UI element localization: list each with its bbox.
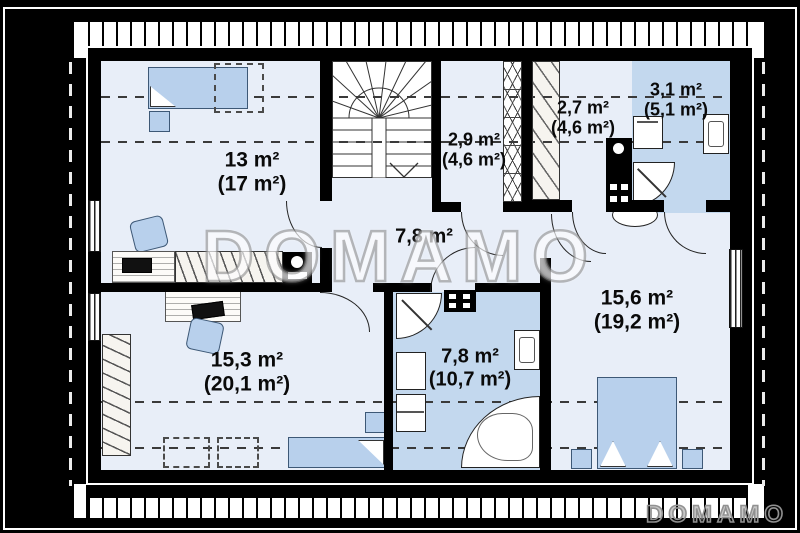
room-area: 15,3 m² [204,348,290,372]
nightstand-symbol-4 [682,449,703,469]
cabinet-line [397,411,424,413]
washer-lid-line [637,121,658,123]
wall [503,202,532,212]
sink-basin-2 [519,337,535,363]
sink-symbol-2 [514,330,540,370]
room-total-area: (4,6 m²) [551,118,615,138]
room-label-bathroom-main: 7,8 m² (10,7 m²) [429,345,511,390]
bed-dashed-outline [214,63,264,113]
wardrobe-symbol-2 [102,334,131,456]
chimney-vent-3 [610,196,617,202]
wall [432,61,441,212]
window-symbol-3 [729,249,743,328]
roof-hatch-bottom-left-cell [72,482,88,520]
room-total-area: (4,6 m²) [442,150,506,170]
wall [522,61,532,202]
planned-furniture-outline-2 [217,437,259,468]
watermark-text: DOMAMO [202,216,598,298]
chimney-vent-1 [610,184,617,190]
room-label-bathroom-small: 3,1 m² (5,1 m²) [644,80,708,121]
room-area: 2,9 m² [442,130,506,150]
shower-diagonal-2 [402,299,433,330]
window-symbol-2 [88,293,101,341]
chimney-dial [613,143,624,154]
room-area: 7,8 m² [429,345,511,368]
sink-basin [708,121,724,147]
room-total-area: (20,1 m²) [204,372,290,396]
room-total-area: (19,2 m²) [594,310,680,334]
cabinet-symbol-1 [396,352,426,390]
heater-dot-4 [463,303,470,308]
room-area: 13 m² [218,148,287,172]
wall [706,200,730,212]
cabinet-symbol-2 [396,394,426,432]
desk-keyboard-symbol [122,258,152,273]
room-total-area: (5,1 m²) [644,100,708,120]
room-label-bedroom-right: 15,6 m² (19,2 m²) [594,286,680,333]
chimney-vent-4 [621,196,628,202]
roof-edge-dashed-right [762,62,765,486]
room-area: 3,1 m² [644,80,708,100]
floor-plan: 13 m² (17 m²) 2,9 m² (4,6 m²) 2,7 m² (4,… [0,0,800,533]
chimney-vent-2 [621,184,628,190]
window-symbol-1 [88,200,101,252]
nightstand-symbol-2 [365,412,386,433]
roof-hatch-top [72,20,766,48]
wall [540,292,551,470]
wall [532,200,572,212]
wall [384,292,393,470]
stairs-symbol [332,61,432,178]
washing-machine-symbol [633,116,663,149]
room-label-wardrobe-room: 2,7 m² (4,6 m²) [551,98,615,139]
room-area: 2,7 m² [551,98,615,118]
shower-diagonal [637,168,666,197]
wall [441,202,461,212]
room-label-bedroom-bottom-left: 15,3 m² (20,1 m²) [204,348,290,395]
room-total-area: (10,7 m²) [429,368,511,391]
nightstand-symbol [149,111,170,132]
heater-dot-3 [449,303,456,308]
roof-edge-dashed-left [69,62,72,486]
wall [320,61,332,201]
planned-furniture-outline-1 [163,437,210,468]
room-area: 15,6 m² [594,286,680,310]
chimney-shaft [606,138,632,212]
room-label-bedroom-top-left: 13 m² (17 m²) [218,148,287,195]
brand-logo-text: DOMAMO [646,501,788,529]
bathtub-basin [477,413,533,461]
wall [632,200,664,212]
room-label-landing: 2,9 m² (4,6 m²) [442,130,506,171]
stairwell [332,61,432,178]
room-total-area: (17 m²) [218,172,287,196]
nightstand-symbol-3 [571,449,592,469]
